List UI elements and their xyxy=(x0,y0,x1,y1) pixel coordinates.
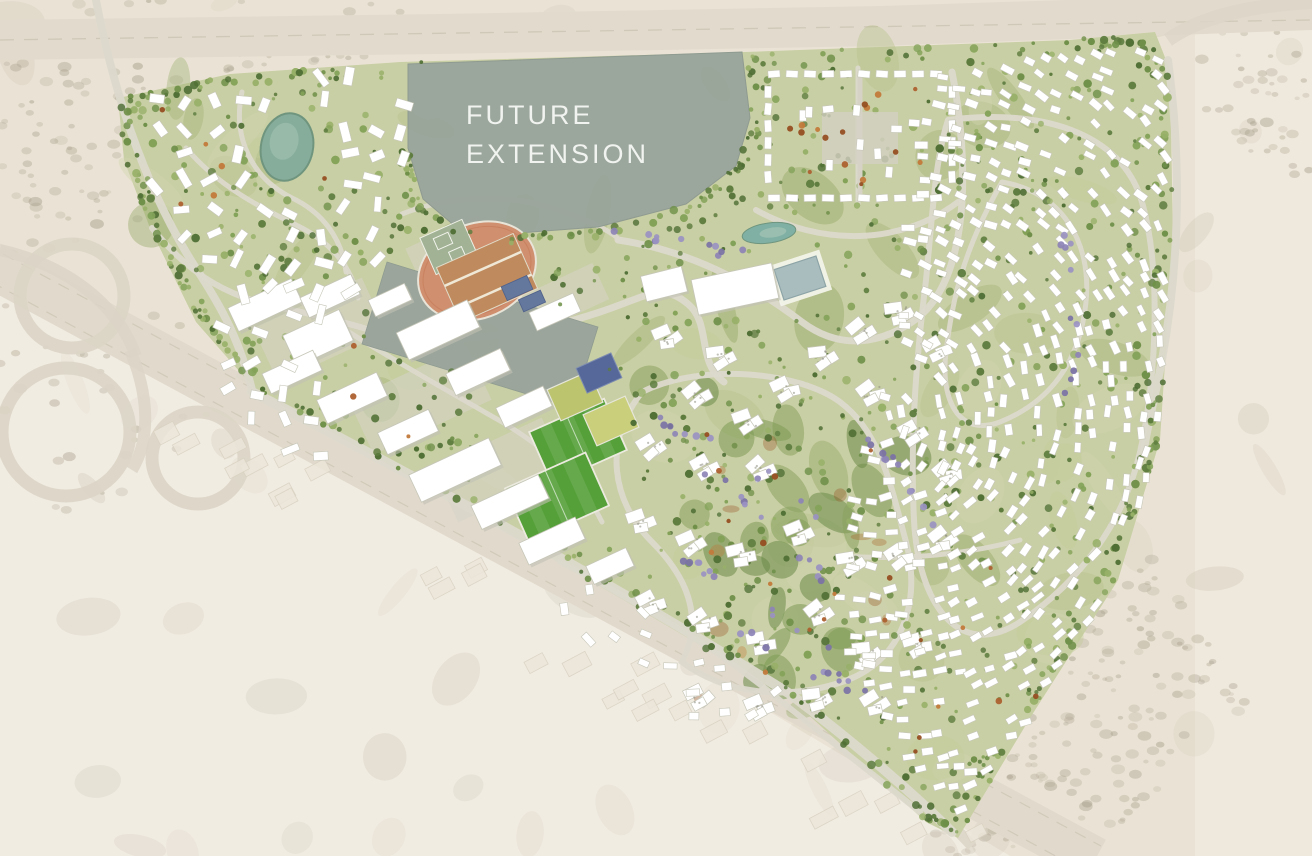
future-extension-label: FUTURE EXTENSION xyxy=(466,96,701,174)
masterplan-canvas: FUTURE EXTENSION xyxy=(0,0,1312,856)
